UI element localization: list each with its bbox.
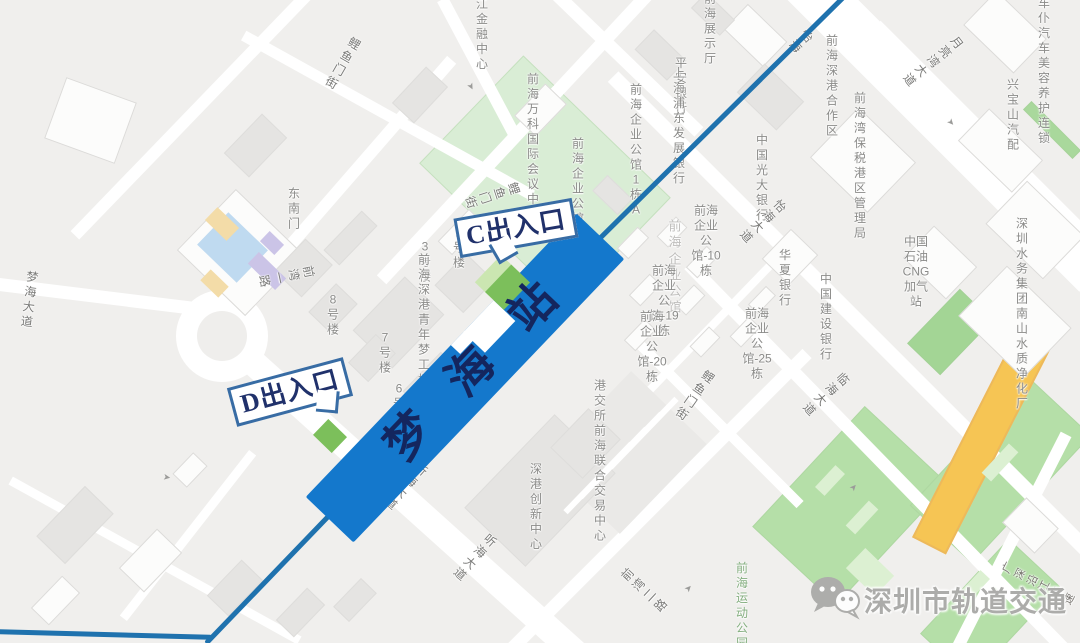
building [30,575,79,625]
building [736,64,803,131]
map-label: 中国建设银行 [820,272,832,362]
map-label: 车仆汽车美容 养护连锁 [1038,0,1050,146]
map-label: 深圳水务集团 南山水质净化厂 [1016,217,1028,412]
map-label: 前海深港合作区 [826,34,838,139]
building [963,0,1047,74]
map-label: 前海展示厅 [704,0,716,67]
map-label: 前海企业 公馆-20栋 [637,310,666,385]
wechat-icon [806,568,862,624]
map-label: 7号楼 [379,331,391,376]
watermark-brand: 深圳市轨道交通 [864,580,1067,620]
map-label: 前海湾保税 港区管理局 [854,91,866,241]
one-way-arrow-icon: ➤ [464,81,477,93]
map-label: 华夏银行 [779,248,791,308]
map-label: 上海浦东 发展银行 [673,66,685,186]
map-label: 香江金融中心 [476,0,488,72]
building [223,113,286,177]
map-canvas[interactable]: ➤➤➤➤➤ 香江金融中心前海展示厅怡海月亮湾大道车仆汽车美容 养护连锁平安银行前… [0,0,1080,643]
map-label: 前海企业 公馆-10栋 [691,204,720,279]
building [172,452,207,487]
building [723,3,787,66]
map-label: 东南门 [288,187,300,232]
map-label: 前海企业 公馆-25栋 [742,307,771,382]
map-label: 兴宝山汽配 [1007,78,1019,153]
building [333,578,377,622]
watermark: 深圳市轨道交通 [806,568,1076,628]
building [118,528,181,592]
one-way-arrow-icon: ➤ [682,582,695,595]
building [44,77,137,164]
callout-entrance-d-pointer [316,390,340,414]
map-label: 前海运动公园 [736,561,748,643]
metro-line-segment-bottom [0,629,212,640]
building [690,326,721,357]
map-label: 梦海大道 [20,269,40,330]
one-way-arrow-icon: ➤ [162,472,171,484]
map-label: 中国石油 CNG加气站 [903,235,930,310]
map-label: 前海万科国 际会议中心 [527,72,539,222]
map-label: 港交所前海 联合交易中心 [594,379,606,544]
map-label: 前湾二路 [619,565,672,615]
building [323,211,377,266]
map-label: 8号楼 [327,293,339,338]
map-label: 深港创新中心 [530,462,542,552]
